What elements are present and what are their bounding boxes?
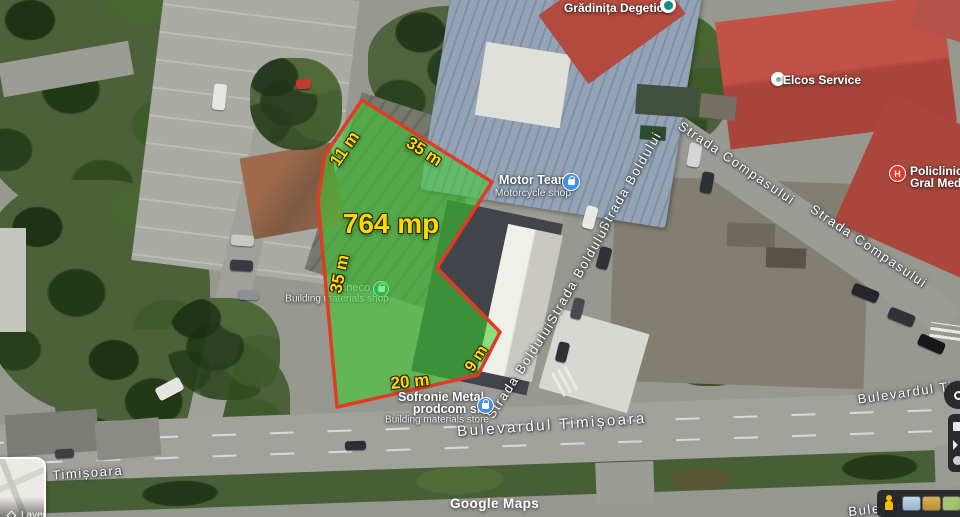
car	[231, 234, 255, 247]
roof	[94, 417, 161, 460]
container	[635, 84, 699, 118]
roof	[5, 409, 100, 457]
container	[727, 222, 776, 248]
container	[699, 93, 737, 121]
imagery-thumbnail-map[interactable]	[943, 497, 960, 510]
poi-category-motor-team: Motorcycle shop	[495, 187, 571, 199]
poi-label-policlinica-2: Gral Medica	[910, 176, 960, 190]
pegman-control[interactable]	[883, 495, 895, 512]
car	[55, 449, 74, 459]
layers-control[interactable]: Layers	[0, 457, 46, 517]
layers-label: Layers	[21, 510, 46, 517]
store-poi-icon[interactable]	[477, 397, 494, 414]
car	[230, 259, 254, 271]
pegman-icon	[885, 501, 893, 510]
median-gap	[595, 461, 654, 505]
measurement-bottom: 20 m	[390, 370, 431, 394]
poi-category-sofronie: Building materials store	[385, 415, 489, 426]
imagery-thumbnail-terrain[interactable]	[923, 497, 940, 510]
satellite-map[interactable]: ineco Building materials shop 11 m 35 m …	[0, 0, 960, 517]
imagery-bar	[877, 490, 960, 517]
imagery-thumbnail-sky[interactable]	[903, 497, 920, 510]
poi-category: Building materials shop	[285, 294, 388, 305]
poi-label-motor-team[interactable]: Motor Team	[499, 173, 569, 187]
poi-label-gradinita[interactable]: Grădinița Degetica	[564, 1, 670, 15]
car	[238, 290, 259, 301]
tree-canopy	[168, 298, 280, 400]
container	[766, 247, 807, 268]
car	[212, 83, 228, 110]
parcel-area-label: 764 mp	[343, 208, 440, 240]
edge-control-stack[interactable]	[948, 414, 960, 472]
poi-label-elcos[interactable]: Elcos Service	[783, 73, 861, 87]
google-maps-watermark: Google Maps	[450, 496, 539, 511]
car	[345, 441, 366, 451]
tree-canopy	[250, 58, 342, 150]
hospital-poi-icon[interactable]: H	[889, 165, 906, 182]
motorcycle-shop-poi-icon[interactable]	[562, 173, 580, 191]
car	[296, 78, 312, 89]
building	[0, 228, 26, 332]
roof-white	[475, 42, 572, 129]
